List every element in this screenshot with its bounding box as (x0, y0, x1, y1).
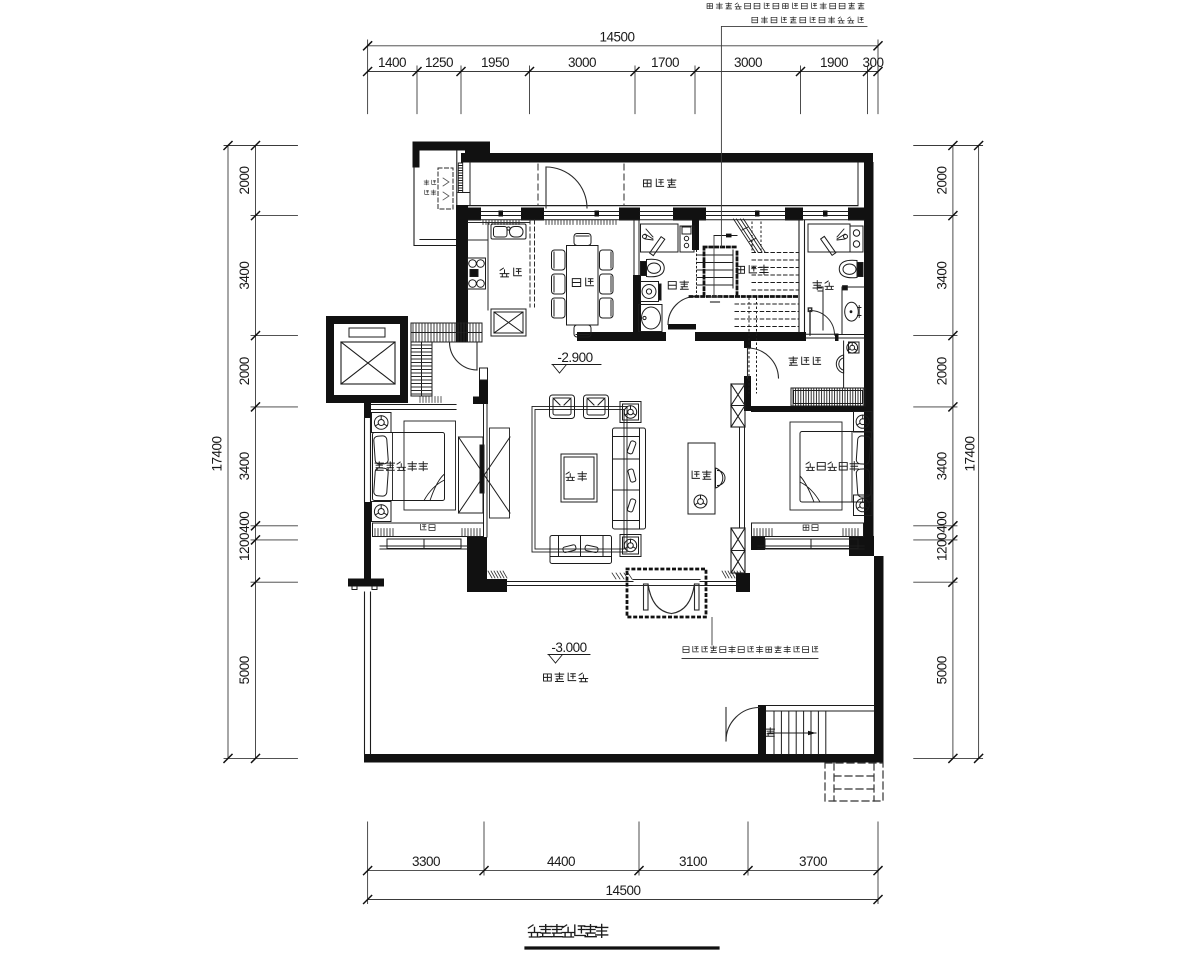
svg-text:1700: 1700 (651, 55, 679, 70)
svg-text:400: 400 (237, 512, 252, 533)
svg-text:2000: 2000 (935, 166, 950, 194)
svg-text:4400: 4400 (547, 854, 575, 869)
svg-text:5000: 5000 (237, 656, 252, 684)
svg-text:3400: 3400 (237, 262, 252, 290)
svg-text:2000: 2000 (237, 357, 252, 385)
svg-text:400: 400 (935, 512, 950, 533)
svg-text:1200: 1200 (237, 533, 252, 561)
svg-text:5000: 5000 (935, 656, 950, 684)
svg-text:-2.900: -2.900 (557, 350, 592, 365)
svg-text:3700: 3700 (799, 854, 827, 869)
svg-text:17400: 17400 (210, 436, 225, 471)
svg-text:1200: 1200 (935, 533, 950, 561)
svg-text:1950: 1950 (481, 55, 509, 70)
svg-text:3100: 3100 (679, 854, 707, 869)
svg-text:3400: 3400 (935, 452, 950, 480)
svg-text:3400: 3400 (935, 262, 950, 290)
svg-text:3000: 3000 (568, 55, 596, 70)
svg-text:2000: 2000 (935, 357, 950, 385)
svg-text:1250: 1250 (425, 55, 453, 70)
svg-text:1400: 1400 (378, 55, 406, 70)
svg-text:3000: 3000 (734, 55, 762, 70)
svg-text:3400: 3400 (237, 452, 252, 480)
svg-text:2000: 2000 (237, 166, 252, 194)
svg-text:1900: 1900 (820, 55, 848, 70)
svg-text:17400: 17400 (963, 436, 978, 471)
svg-text:14500: 14500 (605, 883, 640, 898)
svg-text:300: 300 (862, 55, 883, 70)
svg-text:14500: 14500 (599, 30, 634, 45)
svg-text:-3.000: -3.000 (551, 640, 586, 655)
svg-text:3300: 3300 (412, 854, 440, 869)
